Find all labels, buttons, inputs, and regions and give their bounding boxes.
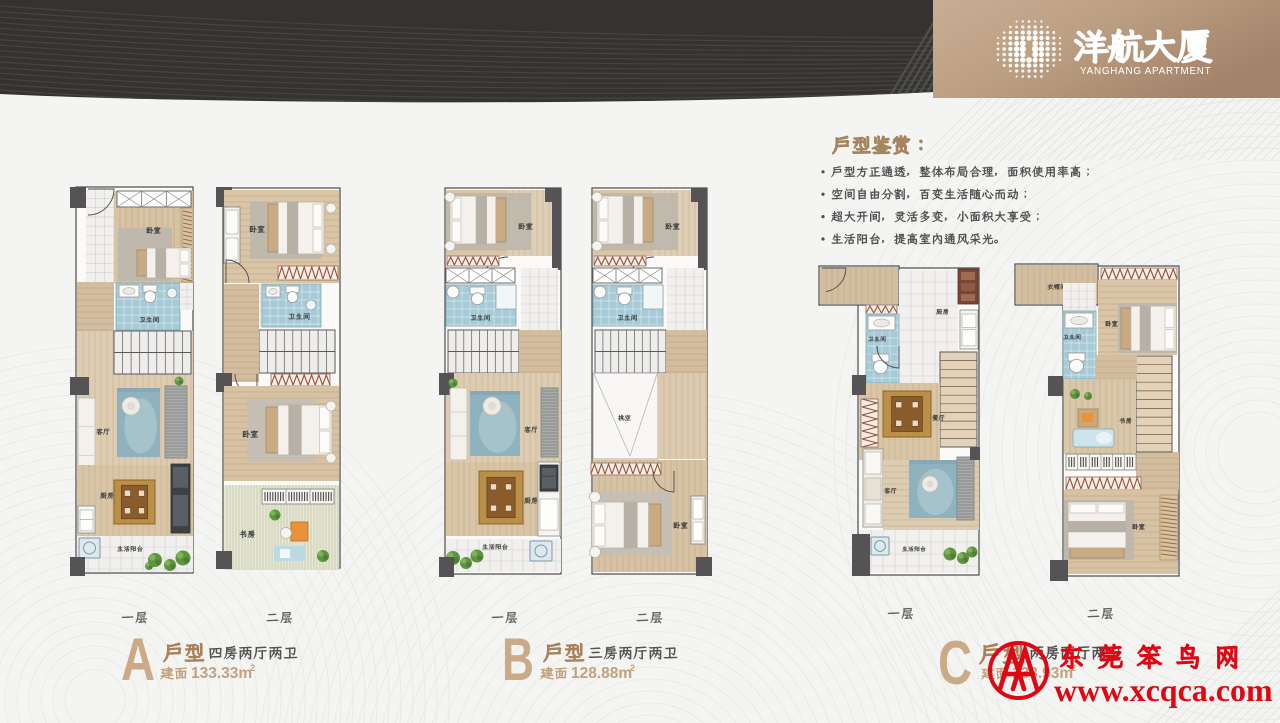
svg-text:2: 2 <box>250 663 255 673</box>
svg-text:A: A <box>121 626 155 693</box>
svg-text:B: B <box>502 626 534 693</box>
svg-text:www.xcqca.com: www.xcqca.com <box>1054 672 1273 708</box>
svg-text:133.33m: 133.33m <box>191 665 252 682</box>
svg-text:2: 2 <box>630 663 635 673</box>
svg-text:C: C <box>938 629 972 698</box>
svg-text:YANGHANG APARTMENT: YANGHANG APARTMENT <box>1080 66 1211 77</box>
svg-text:128.88m: 128.88m <box>571 665 632 682</box>
